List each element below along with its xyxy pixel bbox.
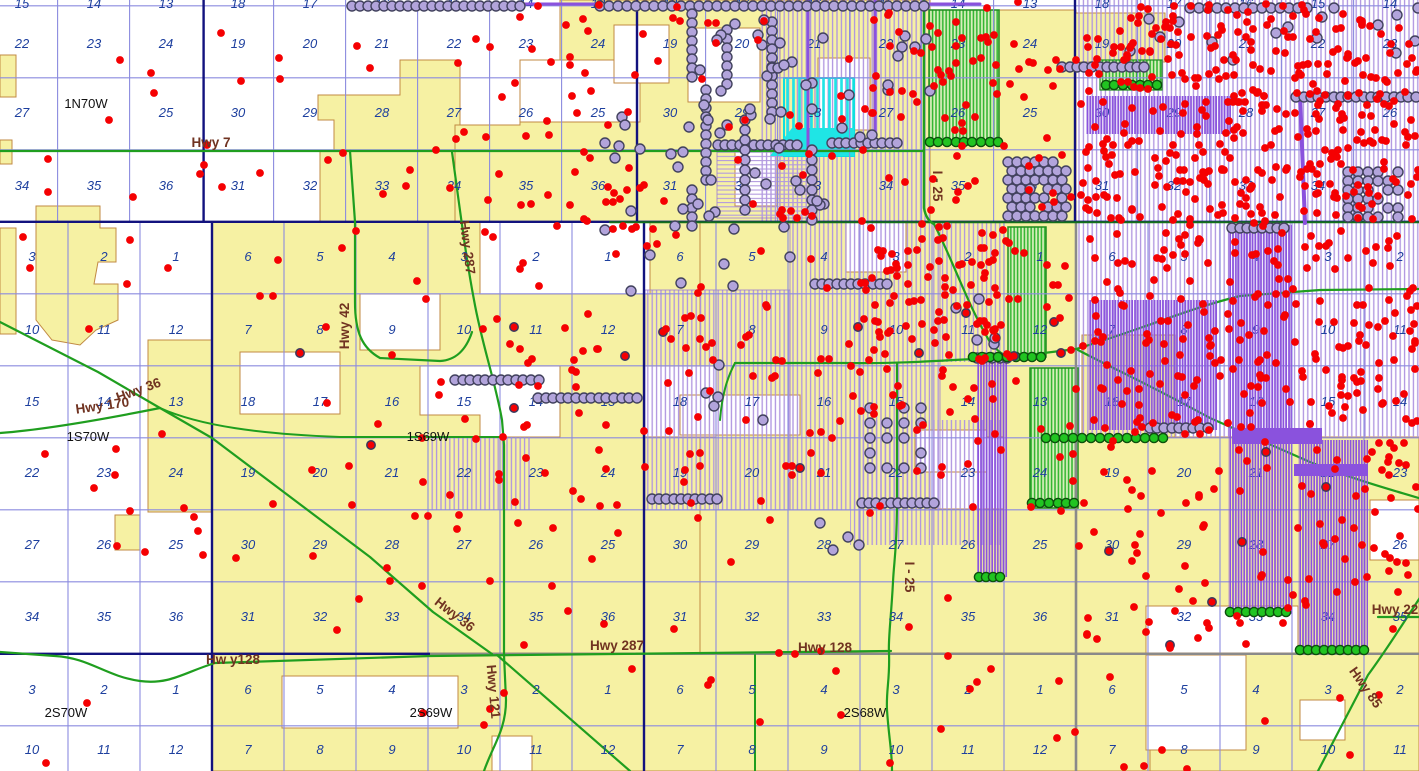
svg-text:24: 24 [158,36,173,51]
svg-text:28: 28 [384,537,400,552]
svg-text:7: 7 [244,742,252,757]
svg-text:13: 13 [159,0,174,11]
svg-text:2: 2 [531,682,540,697]
svg-text:22: 22 [446,36,462,51]
svg-text:36: 36 [169,609,184,624]
svg-text:26: 26 [528,537,544,552]
svg-text:34: 34 [25,609,39,624]
svg-text:3: 3 [1324,249,1332,264]
svg-text:6: 6 [244,682,252,697]
svg-text:20: 20 [744,465,760,480]
svg-text:2: 2 [99,682,108,697]
svg-text:30: 30 [673,537,688,552]
svg-text:25: 25 [1032,537,1048,552]
svg-text:Hwy 22: Hwy 22 [1372,602,1419,617]
svg-text:32: 32 [1177,609,1192,624]
svg-text:31: 31 [1105,609,1119,624]
svg-text:7: 7 [676,742,684,757]
svg-text:31: 31 [241,609,255,624]
svg-text:24: 24 [590,36,605,51]
svg-text:2: 2 [99,249,108,264]
svg-text:10: 10 [25,322,40,337]
svg-text:10: 10 [457,742,472,757]
svg-text:4: 4 [820,682,827,697]
svg-text:30: 30 [241,537,256,552]
svg-text:8: 8 [316,742,324,757]
svg-text:15: 15 [457,394,472,409]
svg-text:12: 12 [169,742,184,757]
svg-text:25: 25 [168,537,184,552]
svg-text:27: 27 [456,537,472,552]
svg-text:13: 13 [1023,0,1038,11]
svg-text:20: 20 [734,36,750,51]
svg-text:1: 1 [172,682,179,697]
svg-text:35: 35 [529,609,544,624]
svg-text:14: 14 [87,0,101,11]
svg-text:4: 4 [388,249,395,264]
svg-text:6: 6 [676,682,684,697]
svg-text:34: 34 [889,609,903,624]
svg-text:8: 8 [1180,742,1188,757]
svg-text:10: 10 [1321,742,1336,757]
svg-text:21: 21 [384,465,399,480]
svg-text:19: 19 [231,36,245,51]
svg-text:I - 25: I - 25 [902,562,917,593]
svg-text:11: 11 [529,742,543,757]
svg-text:33: 33 [385,609,400,624]
svg-text:5: 5 [316,249,324,264]
svg-text:17: 17 [745,394,760,409]
svg-text:26: 26 [960,537,976,552]
svg-text:6: 6 [676,249,684,264]
svg-text:1S70W: 1S70W [67,429,110,444]
svg-text:35: 35 [87,178,102,193]
svg-text:7: 7 [676,322,684,337]
svg-text:10: 10 [889,742,904,757]
svg-text:19: 19 [663,36,677,51]
svg-text:18: 18 [241,394,256,409]
svg-text:4: 4 [820,249,827,264]
svg-text:9: 9 [820,322,827,337]
svg-text:28: 28 [374,105,390,120]
svg-text:6: 6 [1108,682,1116,697]
svg-text:13: 13 [1033,394,1048,409]
svg-text:32: 32 [745,609,760,624]
svg-text:3: 3 [892,682,900,697]
svg-text:11: 11 [529,322,543,337]
svg-text:20: 20 [1176,465,1192,480]
svg-text:12: 12 [169,322,184,337]
svg-text:12: 12 [1033,742,1048,757]
svg-text:12: 12 [601,742,616,757]
svg-text:34: 34 [15,178,29,193]
svg-text:18: 18 [673,394,688,409]
svg-text:2: 2 [531,249,540,264]
svg-text:23: 23 [86,36,102,51]
svg-text:7: 7 [244,322,252,337]
svg-text:11: 11 [97,742,111,757]
svg-text:11: 11 [961,742,975,757]
svg-text:35: 35 [961,609,976,624]
svg-text:11: 11 [1393,742,1407,757]
svg-text:21: 21 [374,36,389,51]
svg-text:9: 9 [388,322,395,337]
svg-text:30: 30 [663,105,678,120]
svg-text:27: 27 [446,105,462,120]
svg-text:4: 4 [1252,682,1259,697]
svg-text:27: 27 [888,537,904,552]
svg-text:24: 24 [1032,465,1047,480]
svg-text:3: 3 [460,682,468,697]
svg-text:25: 25 [158,105,174,120]
svg-text:4: 4 [388,682,395,697]
svg-text:2: 2 [1395,249,1404,264]
svg-text:31: 31 [231,178,245,193]
svg-text:29: 29 [312,537,327,552]
svg-text:1: 1 [604,249,611,264]
svg-text:5: 5 [1180,682,1188,697]
svg-text:9: 9 [1252,742,1259,757]
svg-text:23: 23 [96,465,112,480]
svg-text:13: 13 [169,394,184,409]
svg-text:18: 18 [231,0,246,11]
svg-text:36: 36 [591,178,606,193]
svg-text:24: 24 [168,465,183,480]
svg-text:10: 10 [25,742,40,757]
svg-text:8: 8 [748,742,756,757]
svg-text:27: 27 [14,105,30,120]
svg-text:16: 16 [817,394,832,409]
svg-text:2S68W: 2S68W [844,705,887,720]
svg-text:16: 16 [385,394,400,409]
svg-text:11: 11 [961,322,975,337]
svg-text:3: 3 [1324,682,1332,697]
svg-text:3: 3 [28,682,36,697]
svg-text:Hwy 42: Hwy 42 [337,303,352,350]
svg-text:15: 15 [25,394,40,409]
svg-text:26: 26 [518,105,534,120]
svg-text:1: 1 [1036,682,1043,697]
svg-text:3: 3 [28,249,36,264]
svg-text:17: 17 [303,0,318,11]
svg-text:1N70W: 1N70W [64,96,108,111]
svg-text:32: 32 [313,609,328,624]
svg-text:35: 35 [519,178,534,193]
svg-text:12: 12 [1033,322,1048,337]
svg-text:24: 24 [1022,36,1037,51]
svg-text:29: 29 [302,105,317,120]
svg-text:I - 25: I - 25 [930,171,945,202]
svg-text:31: 31 [673,609,687,624]
svg-text:7: 7 [1108,742,1116,757]
svg-text:27: 27 [24,537,40,552]
svg-text:10: 10 [457,322,472,337]
svg-text:5: 5 [316,682,324,697]
svg-text:Hwy 287: Hwy 287 [590,638,644,653]
svg-text:1: 1 [172,249,179,264]
svg-text:22: 22 [14,36,30,51]
svg-text:20: 20 [302,36,318,51]
svg-text:35: 35 [97,609,112,624]
svg-text:18: 18 [1095,0,1110,11]
svg-text:2S69W: 2S69W [410,705,453,720]
svg-text:12: 12 [601,322,616,337]
svg-text:29: 29 [744,537,759,552]
svg-text:6: 6 [244,249,252,264]
svg-text:25: 25 [1022,105,1038,120]
svg-text:22: 22 [24,465,40,480]
svg-text:1: 1 [1036,249,1043,264]
svg-text:1: 1 [604,682,611,697]
svg-text:14: 14 [1383,0,1397,11]
svg-text:5: 5 [748,682,756,697]
svg-text:15: 15 [1311,0,1326,11]
svg-text:30: 30 [231,105,246,120]
svg-text:Hwy 7: Hwy 7 [191,135,230,150]
svg-text:2: 2 [1395,682,1404,697]
svg-text:36: 36 [1033,609,1048,624]
svg-text:19: 19 [241,465,255,480]
svg-text:9: 9 [820,742,827,757]
svg-text:15: 15 [15,0,30,11]
svg-text:31: 31 [663,178,677,193]
svg-text:27: 27 [878,105,894,120]
svg-text:25: 25 [600,537,616,552]
svg-text:5: 5 [748,249,756,264]
svg-text:2S70W: 2S70W [45,705,88,720]
svg-text:Hw y128: Hw y128 [206,652,261,667]
svg-text:Hwy 128: Hwy 128 [798,640,853,655]
svg-text:25: 25 [590,105,606,120]
svg-text:26: 26 [96,537,112,552]
svg-text:32: 32 [303,178,318,193]
svg-text:36: 36 [159,178,174,193]
svg-text:11: 11 [97,322,111,337]
svg-text:22: 22 [456,465,472,480]
svg-text:1S69W: 1S69W [407,429,450,444]
svg-text:29: 29 [1176,537,1191,552]
svg-text:33: 33 [817,609,832,624]
svg-text:9: 9 [388,742,395,757]
